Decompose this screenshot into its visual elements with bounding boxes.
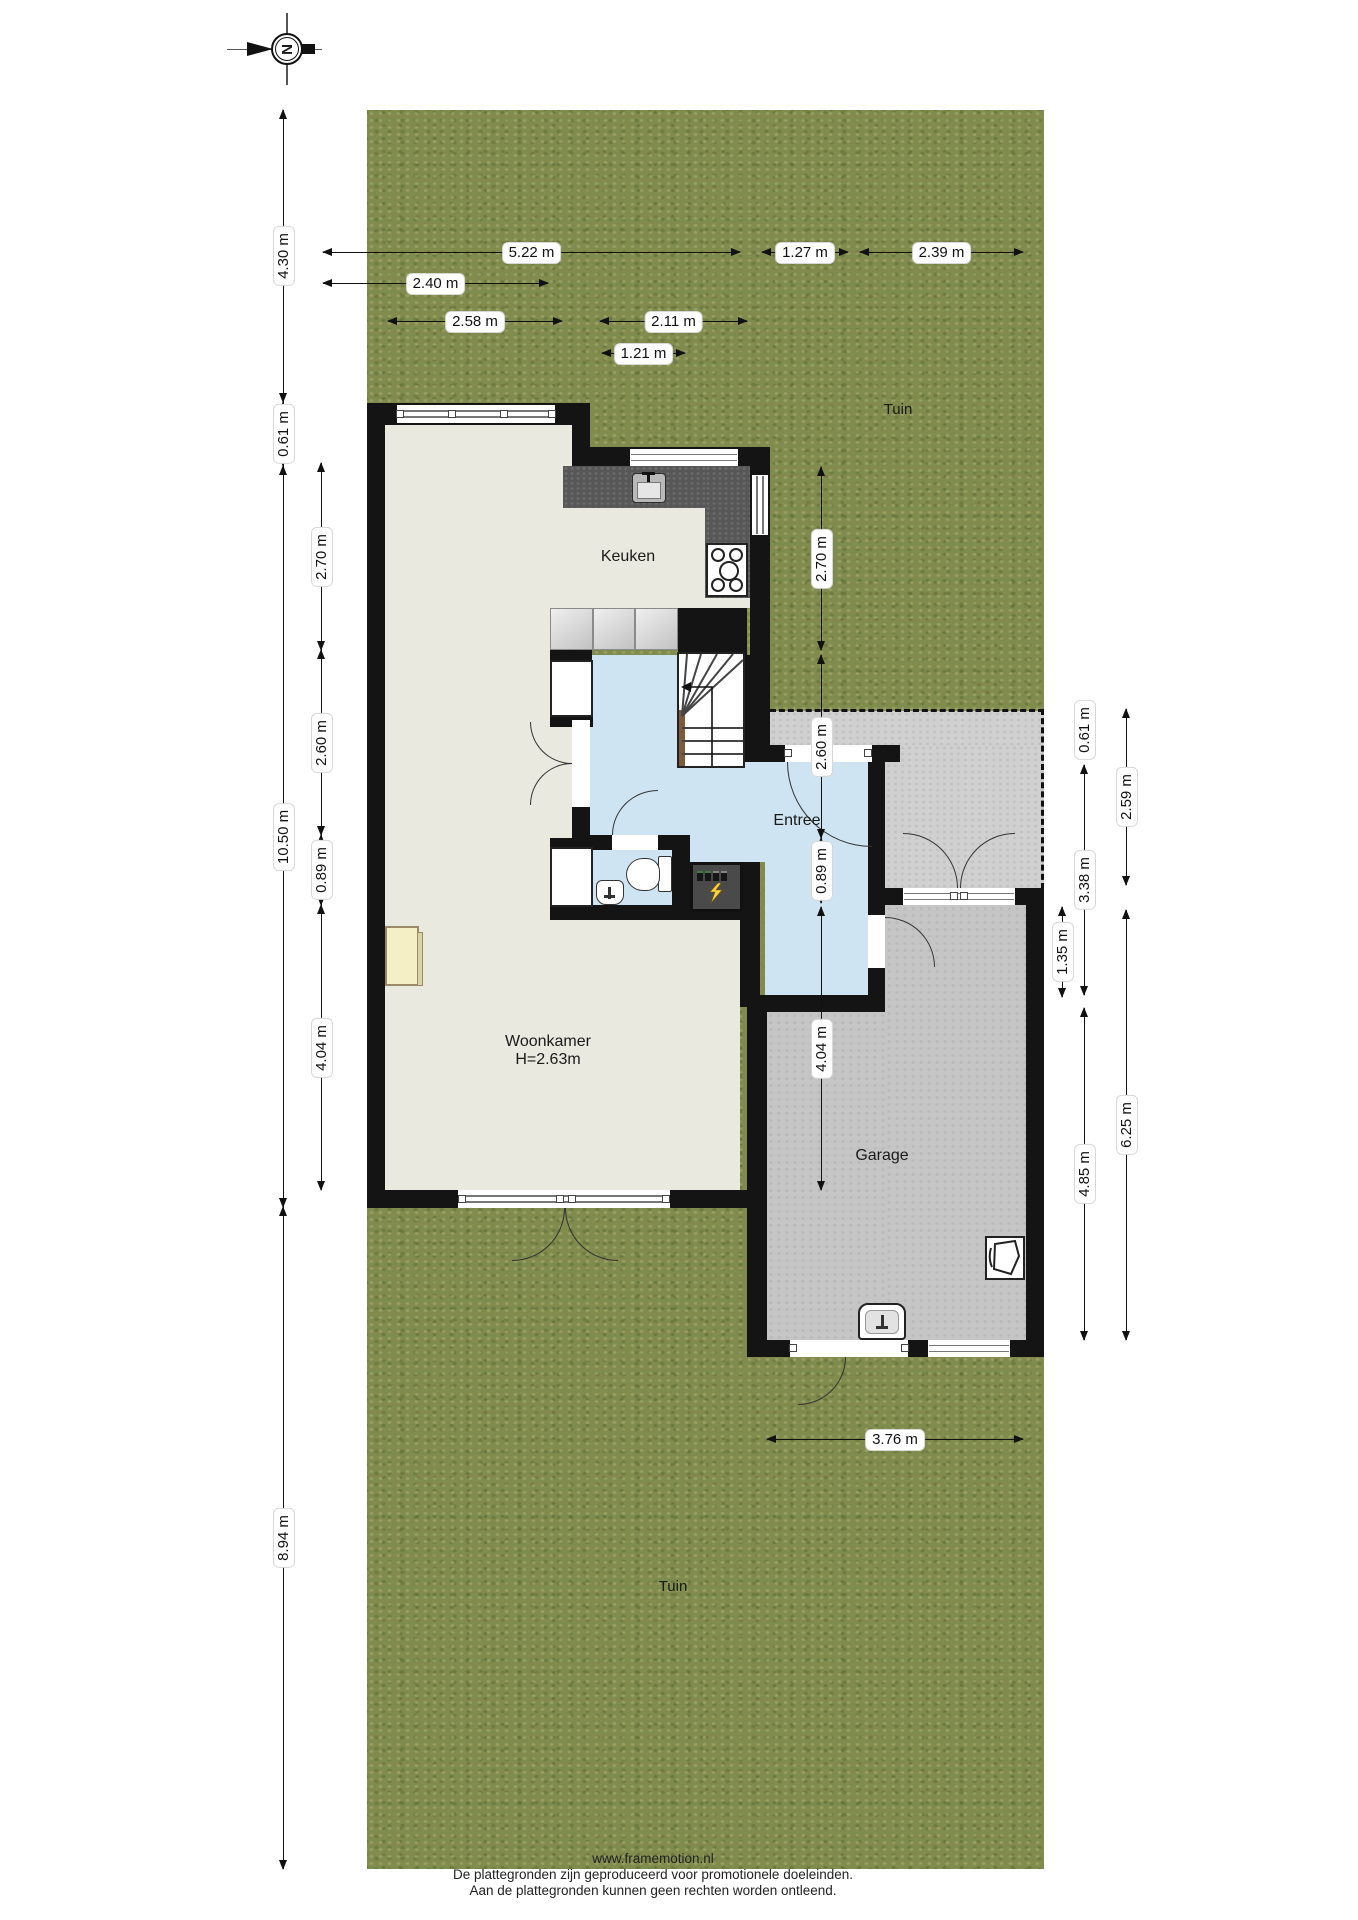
dimension-label: 2.70 m [311,527,333,587]
livingroom-door-opening [572,720,590,807]
dimension-label: 4.30 m [273,226,295,286]
lightning-icon [708,883,724,903]
dimension-label: 10.50 m [273,802,295,870]
footer-disclaimer-line: De plattegronden zijn geproduceerd voor … [353,1867,953,1883]
dimension-label: 2.60 m [311,713,333,773]
dimension: 1.27 m [762,243,848,263]
footer-disclaimer: www.framemotion.nl De plattegronden zijn… [353,1851,953,1899]
footer-disclaimer-line: Aan de plattegronden kunnen geen rechten… [353,1883,953,1899]
window [458,1190,670,1208]
door-jamb [960,892,968,900]
dimension: 0.61 m [274,402,294,466]
window-jamb [556,1195,564,1203]
window-jamb [548,410,556,418]
garden-label-bottom: Tuin [633,1578,713,1595]
kitchen-sink-icon [632,473,666,503]
dimension: 6.25 m [1117,910,1137,1340]
dimension-label: 2.40 m [406,273,466,295]
dimension: 2.59 m [1117,709,1137,885]
wall [672,835,690,915]
dimension-label: 2.60 m [811,717,833,777]
dimension: 4.04 m [312,905,332,1190]
dimension-label: 0.61 m [273,404,295,464]
stove-icon [706,543,748,597]
door-jamb [950,892,958,900]
window-jamb [458,1195,466,1203]
dimension: 2.60 m [812,655,832,838]
window-jamb [396,410,404,418]
room-label-garage: Garage [832,1147,932,1165]
dimension-label: 8.94 m [273,1508,295,1568]
room-label-entry: Entree [747,812,847,830]
dimension: 1.35 m [1053,907,1073,997]
door-jamb [789,1344,797,1352]
dimension-label: 6.25 m [1116,1095,1138,1155]
dimension-label: 2.58 m [445,311,505,333]
dimension-label: 0.61 m [1074,700,1096,760]
dimension: 8.94 m [274,1207,294,1869]
wall [747,995,767,1357]
door-jamb [901,1344,909,1352]
dimension: 3.38 m [1075,765,1095,995]
dimension: 2.58 m [388,312,562,332]
toilet-icon [626,855,672,895]
dimension-label: 4.04 m [311,1018,333,1078]
plot-boundary-dashed [1041,709,1044,889]
dimension: 2.11 m [600,312,747,332]
garden-label-top: Tuin [858,401,938,418]
boiler-icon [985,1236,1025,1280]
dimension: 1.21 m [602,344,685,364]
dimension-label: 1.27 m [775,242,835,264]
wall [740,862,760,1007]
dimension: 5.22 m [323,243,740,263]
dimension: 2.40 m [323,274,548,294]
wc-door-opening [612,835,658,850]
dimension: 10.50 m [274,466,294,1207]
dimension-label: 3.38 m [1074,850,1096,910]
dimension-label: 1.35 m [1052,922,1074,982]
room-label-living: Woonkamer H=2.63m [468,1033,628,1069]
garage-back-door-opening [790,1340,908,1357]
dimension-label: 0.89 m [811,841,833,901]
window-jamb [662,1195,670,1203]
dimension: 2.70 m [312,463,332,650]
window-jamb [500,410,508,418]
footer-url: www.framemotion.nl [353,1851,953,1867]
garage-basin-icon [858,1303,906,1340]
floorplan-canvas: N [0,0,1358,1920]
door-jamb [784,749,792,757]
dimension: 2.39 m [860,243,1023,263]
dimension: 2.70 m [812,467,832,650]
dimension-label: 2.70 m [811,529,833,589]
door-jamb [864,749,872,757]
wall [745,655,765,762]
dimension-label: 2.11 m [644,311,703,333]
dimension-label: 5.22 m [502,242,562,264]
window-jamb [568,1195,576,1203]
window [752,475,768,535]
dimension: 4.04 m [812,907,832,1190]
window-jamb [448,410,456,418]
dimension: 4.85 m [1075,1008,1095,1340]
closet [550,660,593,717]
dimension-label: 2.39 m [912,242,972,264]
window [397,405,555,423]
room-label-kitchen: Keuken [578,548,678,566]
garage-double-door-opening [903,888,1015,905]
dimension-label: 4.04 m [811,1019,833,1079]
dimension-label: 3.76 m [865,1429,925,1451]
garage-window [928,1340,1010,1357]
dimension-label: 0.89 m [311,840,333,900]
dimension: 4.30 m [274,110,294,402]
closet [550,847,593,907]
room-height-note: H=2.63m [468,1051,628,1069]
kitchen-cabinets [550,608,678,650]
wc-sink-icon [596,880,624,905]
compass-letter: N [279,44,296,55]
window [630,449,738,466]
stairs-icon [677,652,745,768]
fireplace-icon [385,926,419,986]
dimension: 0.61 m [1075,709,1095,750]
wall [678,608,747,655]
wall [367,403,385,1207]
wall [1026,888,1044,1357]
dimension-label: 1.21 m [614,343,674,365]
dimension: 0.89 m [312,835,332,905]
dimension-label: 2.59 m [1116,767,1138,827]
dimension: 3.76 m [767,1430,1023,1450]
dimension: 2.60 m [312,650,332,835]
dimension-label: 4.85 m [1074,1144,1096,1204]
entry-floor [690,835,745,865]
meter-cabinet-icon [690,862,743,912]
garage-side-door-opening [868,915,885,968]
dimension: 0.89 m [812,838,832,903]
